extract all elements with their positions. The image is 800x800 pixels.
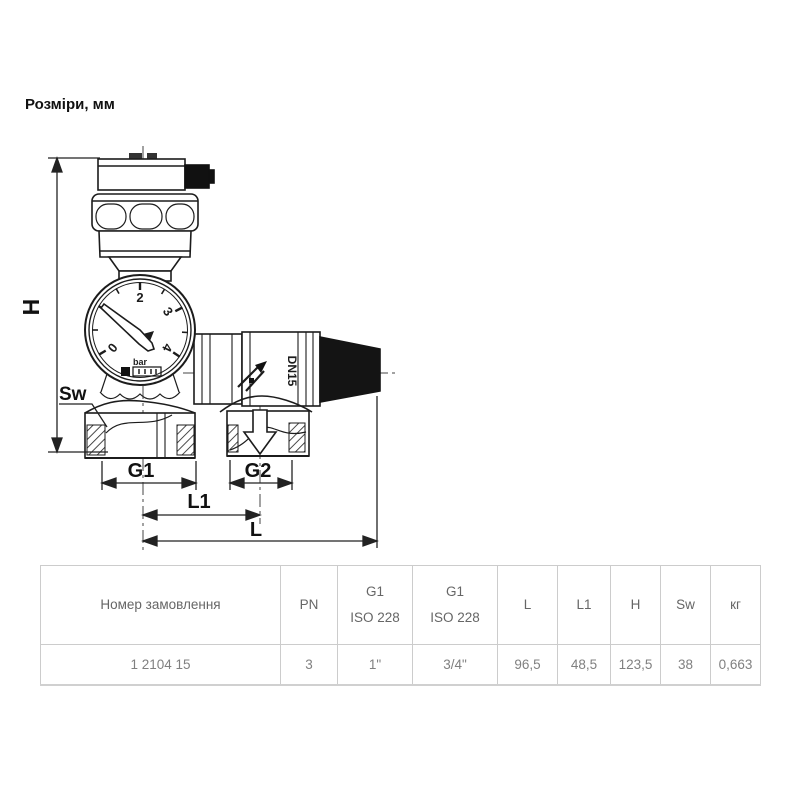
col-header-sw: Sw — [661, 566, 711, 645]
air-vent-lower-body — [99, 231, 191, 257]
cell-l1: 48,5 — [558, 645, 611, 686]
dimension-arrow — [278, 478, 292, 488]
col-header-h: H — [611, 566, 661, 645]
g2-hatch — [228, 425, 238, 452]
cell-order-number: 1 2104 15 — [41, 645, 281, 686]
air-vent-taper — [109, 257, 181, 271]
cap-tab — [147, 153, 157, 159]
dimension-arrow — [182, 478, 196, 488]
valve-body — [242, 332, 320, 406]
product-dimensions-page: { "page": { "title": "Розміри, мм" }, "d… — [0, 0, 800, 800]
gauge-unit-label: bar — [133, 357, 148, 367]
dim-label-g2: G2 — [245, 460, 272, 482]
dimension-arrow — [230, 478, 244, 488]
col-header-l1: L1 — [558, 566, 611, 645]
valve-union — [194, 334, 242, 404]
dim-label-h: H — [18, 299, 44, 316]
dimension-arrow — [143, 510, 157, 520]
g1-hatch — [87, 425, 105, 455]
dim-label-g1: G1 — [128, 460, 155, 482]
col-header-pn: PN — [281, 566, 338, 645]
cell-h: 123,5 — [611, 645, 661, 686]
dimension-arrow — [52, 438, 62, 452]
dimension-arrow — [363, 536, 377, 546]
cell-sw: 38 — [661, 645, 711, 686]
gauge-tick-label: 2 — [136, 290, 143, 305]
air-vent — [92, 153, 214, 281]
cell-kg: 0,663 — [711, 645, 761, 686]
valve-dn-marking: DN15 — [285, 356, 299, 387]
dimension-arrow — [52, 158, 62, 172]
cell-pn: 3 — [281, 645, 338, 686]
spec-table-container: Номер замовлення PN G1 ISO 228 G1 ISO 22… — [40, 565, 760, 686]
table-row: 1 2104 15 3 1" 3/4" 96,5 48,5 123,5 38 0… — [41, 645, 761, 686]
valve-knurled-cap — [320, 337, 380, 402]
col-header-kg: кг — [711, 566, 761, 645]
dim-label-sw: Sw — [59, 384, 87, 405]
col-header-order-number: Номер замовлення — [41, 566, 281, 645]
g1-shoulder — [85, 401, 195, 414]
col-header-l: L — [498, 566, 558, 645]
table-header-row: Номер замовлення PN G1 ISO 228 G1 ISO 22… — [41, 566, 761, 645]
col-header-g1-iso228-2: G1 ISO 228 — [413, 566, 498, 645]
col-header-g1-iso228: G1 ISO 228 — [338, 566, 413, 645]
air-vent-cap — [98, 159, 185, 190]
gauge-stem — [100, 392, 180, 399]
dimension-arrow — [102, 478, 116, 488]
spec-table: Номер замовлення PN G1 ISO 228 G1 ISO 22… — [40, 565, 761, 686]
g1-hatch — [177, 425, 194, 455]
cell-l: 96,5 — [498, 645, 558, 686]
air-vent-hex-body — [92, 194, 198, 231]
cap-tab — [129, 153, 142, 159]
dim-label-l1: L1 — [187, 491, 210, 513]
safety-valve: DN15 — [194, 332, 380, 456]
g2-hatch — [289, 423, 305, 452]
dim-label-l: L — [250, 519, 262, 541]
cell-g2: 3/4" — [413, 645, 498, 686]
cell-g1: 1" — [338, 645, 413, 686]
vent-nipple-icon — [185, 165, 209, 188]
vent-nipple-tip — [209, 170, 214, 183]
dimension-arrow — [143, 536, 157, 546]
pressure-gauge: 0 2 3 4 bar — [85, 275, 195, 385]
